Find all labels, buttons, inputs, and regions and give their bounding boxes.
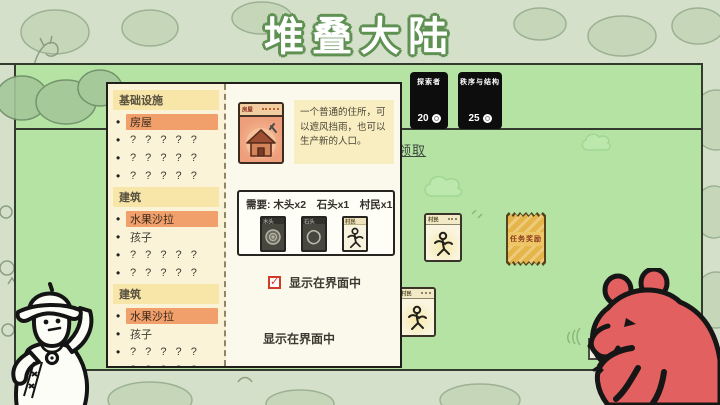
- list-item[interactable]: •? ? ? ? ?: [116, 265, 218, 280]
- cardopedia-window: 基础设施 •房屋 •? ? ? ? ? •? ? ? ? ? •? ? ? ? …: [106, 82, 402, 368]
- villager-card[interactable]: 村民: [424, 213, 462, 262]
- list-item[interactable]: •? ? ? ? ?: [116, 362, 218, 366]
- villager-icon: [430, 230, 456, 258]
- section-header: 建筑: [113, 284, 219, 304]
- bullet-icon: •: [116, 248, 126, 262]
- list-item[interactable]: •房屋: [116, 114, 218, 129]
- recipe-label: 需要: 木头x2 石头x1 村民x1: [246, 197, 386, 212]
- card-head-dots: [262, 108, 279, 110]
- list-item[interactable]: •? ? ? ? ?: [116, 168, 218, 183]
- quest-reward-pack[interactable]: 任务奖励: [506, 212, 546, 266]
- section-header: 建筑: [113, 187, 219, 207]
- list-item[interactable]: •水果沙拉: [116, 308, 218, 323]
- check-icon[interactable]: ✓: [268, 276, 281, 289]
- card-name: 房屋: [242, 106, 253, 114]
- bullet-icon: •: [116, 212, 126, 226]
- list-item[interactable]: •水果沙拉: [116, 211, 218, 226]
- pack-name: 秩序与结构: [460, 77, 500, 87]
- rat-doodle: [578, 268, 720, 405]
- house-card-preview: 房屋: [238, 102, 284, 164]
- cardopedia-list: 基础设施 •房屋 •? ? ? ? ? •? ? ? ? ? •? ? ? ? …: [108, 84, 226, 366]
- villager-icon: [404, 304, 430, 332]
- cardopedia-detail: 房屋: [226, 84, 400, 366]
- list-item[interactable]: •? ? ? ? ?: [116, 132, 218, 147]
- list-item[interactable]: •? ? ? ? ?: [116, 344, 218, 359]
- card-head-dots: [421, 292, 431, 294]
- board-top-line: [0, 63, 14, 65]
- card-head-dots: [448, 218, 457, 220]
- show-in-ui-checkbox[interactable]: ✓ 显示在界面中: [268, 274, 361, 291]
- card-name: 村民: [428, 216, 439, 224]
- pack-price: 20: [412, 113, 446, 124]
- bullet-icon: •: [116, 230, 126, 244]
- bullet-icon: •: [116, 151, 126, 165]
- pack-price-value: 20: [417, 113, 428, 124]
- booster-pack-explorer[interactable]: 探索者 20: [410, 72, 448, 129]
- quest-reward-label: 任务奖励: [508, 232, 544, 246]
- booster-pack-order[interactable]: 秩序与结构 25: [458, 72, 502, 129]
- app-root: 堆叠大陆 点击领取 探索者 20 秩序与结构 25 村民: [0, 0, 720, 405]
- pack-name: 探索者: [412, 77, 446, 87]
- bullet-icon: •: [116, 169, 126, 183]
- bullet-icon: •: [116, 115, 126, 129]
- list-item[interactable]: •孩子: [116, 229, 218, 244]
- list-item[interactable]: •? ? ? ? ?: [116, 247, 218, 262]
- card-description: 一个普通的住所，可以遮风挡雨，也可以生产新的人口。: [294, 100, 394, 164]
- pack-price-value: 25: [468, 113, 479, 124]
- villager-card[interactable]: 村民: [397, 287, 436, 337]
- house-icon: [241, 121, 281, 161]
- villager-mini-card: 村民: [342, 216, 368, 252]
- list-item[interactable]: •? ? ? ? ?: [116, 150, 218, 165]
- list-item[interactable]: •孩子: [116, 326, 218, 341]
- wood-icon: [263, 227, 283, 247]
- stone-icon: [304, 227, 324, 247]
- show-in-ui-label-2[interactable]: 显示在界面中: [263, 330, 335, 347]
- explorer-doodle: [0, 276, 125, 405]
- coin-icon: [432, 114, 441, 123]
- game-title: 堆叠大陆: [0, 4, 720, 62]
- pack-price: 25: [460, 113, 500, 124]
- show-in-ui-label: 显示在界面中: [289, 274, 361, 291]
- section-header: 基础设施: [113, 90, 219, 110]
- card-name: 村民: [401, 290, 412, 298]
- stone-mini-card: 石头: [301, 216, 327, 252]
- bullet-icon: •: [116, 133, 126, 147]
- villager-icon: [344, 226, 366, 250]
- recipe-box: 需要: 木头x2 石头x1 村民x1 木头: [237, 190, 395, 256]
- wood-mini-card: 木头: [260, 216, 286, 252]
- coin-icon: [483, 114, 492, 123]
